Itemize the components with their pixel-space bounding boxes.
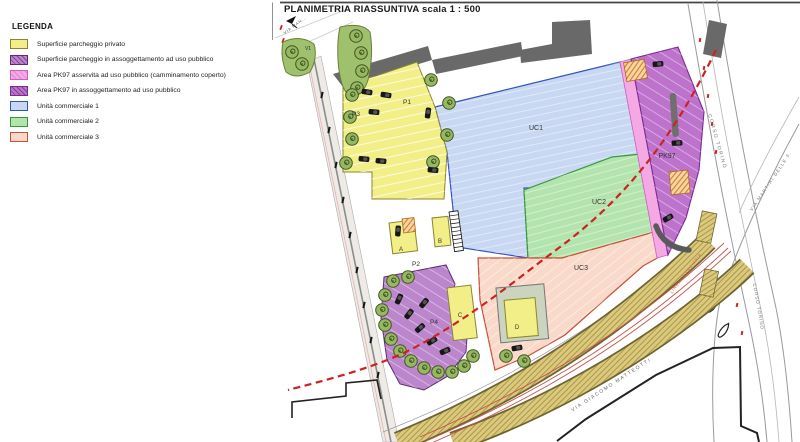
site-plan-sheet: UC1 UC2 UC3 PK97 P1 P2 P3 P4 A B C D V1 … [0,0,800,442]
legend-swatch [10,117,28,127]
legend-item: Unità commerciale 2 [10,117,282,127]
car-icon [671,140,682,146]
label-unit-c: C [458,313,463,319]
tree-icon [441,129,454,142]
tree-icon [385,333,398,346]
green-verge-v1 [282,38,315,76]
tree-icon [350,30,363,43]
unit-d-box [504,298,538,339]
tree-icon [340,157,353,170]
street-curb-outline [557,347,759,442]
legend-swatch [10,55,28,65]
legend-item-label: Area PK97 asservita ad uso pubblico (cam… [37,72,226,79]
label-unit-b: B [438,239,442,245]
legend-item-label: Superficie parcheggio privato [37,41,125,48]
legend-swatch [10,86,28,96]
label-p1: P1 [403,99,411,106]
tree-icon [379,319,392,332]
legend: LEGENDA Superficie parcheggio privato Su… [10,22,282,148]
car-icon [427,167,438,173]
legend-item-label: Unità commerciale 2 [37,118,99,125]
tree-icon [376,304,389,317]
legend-item: Area PK97 in assoggettamento ad uso pubb… [10,86,282,96]
tree-icon [286,46,299,59]
legend-heading: LEGENDA [12,22,282,31]
tree-icon [425,74,438,87]
pk97-stair-block [669,170,690,195]
tree-icon [458,360,471,373]
label-uc1: UC1 [529,125,543,132]
legend-item: Superficie parcheggio in assoggettamento… [10,55,282,65]
legend-item: Unità commerciale 3 [10,132,282,142]
label-uc3: UC3 [574,265,588,272]
label-p4: P4 [430,319,438,326]
tree-icon [518,355,531,368]
legend-item: Superficie parcheggio privato [10,39,282,49]
label-pk97: PK97 [658,153,675,160]
tree-icon [379,289,392,302]
tree-icon [356,65,369,78]
legend-item-label: Unità commerciale 1 [37,103,99,110]
street-label-via-martiri: VIA MARTIRI DELLE F. [749,150,793,212]
label-p3: P3 [352,111,360,118]
building [520,20,592,63]
legend-swatch [10,101,28,111]
tree-icon [443,97,456,110]
tree-icon [500,350,513,363]
car-icon [652,61,663,67]
tree-icon [467,350,480,363]
tree-icon [296,58,309,71]
legend-swatch [10,132,28,142]
legend-item: Area PK97 asservita ad uso pubblico (cam… [10,70,282,80]
tree-icon [346,133,359,146]
tree-icon [427,156,440,169]
tree-icon [402,271,415,284]
car-icon [395,225,401,236]
tree-icon [405,355,418,368]
legend-item-label: Unità commerciale 3 [37,134,99,141]
label-unit-d: D [515,325,520,331]
legend-item: Unità commerciale 1 [10,101,282,111]
tree-icon [432,366,445,379]
label-uc2: UC2 [592,199,606,206]
legend-swatch [10,70,28,80]
unit-a-stair-block [402,218,416,233]
street-label-corso-torino-lower: CORSO TORINO [752,283,765,330]
tree-icon [446,366,459,379]
tree-icon [346,89,359,102]
tree-icon [418,362,431,375]
legend-swatch [10,39,28,49]
page-title: PLANIMETRIA RIASSUNTIVA scala 1 : 500 [284,4,481,15]
tree-icon [387,275,400,288]
label-v1: V1 [305,46,311,52]
building [432,42,523,74]
unit-d-platform [496,284,549,343]
car-icon [375,158,386,164]
pk97-stair-block [624,59,648,81]
label-p2: P2 [412,261,420,268]
street-label-corso-torino-upper: CORSO TORINO [706,114,727,170]
tram-crossing [696,211,717,243]
tree-icon [355,47,368,60]
label-unit-a: A [399,247,403,253]
legend-item-label: Superficie parcheggio in assoggettamento… [37,56,213,63]
legend-item-label: Area PK97 in assoggettamento ad uso pubb… [37,87,181,94]
traffic-island [717,322,731,339]
car-icon [358,156,369,162]
car-icon [368,109,379,115]
